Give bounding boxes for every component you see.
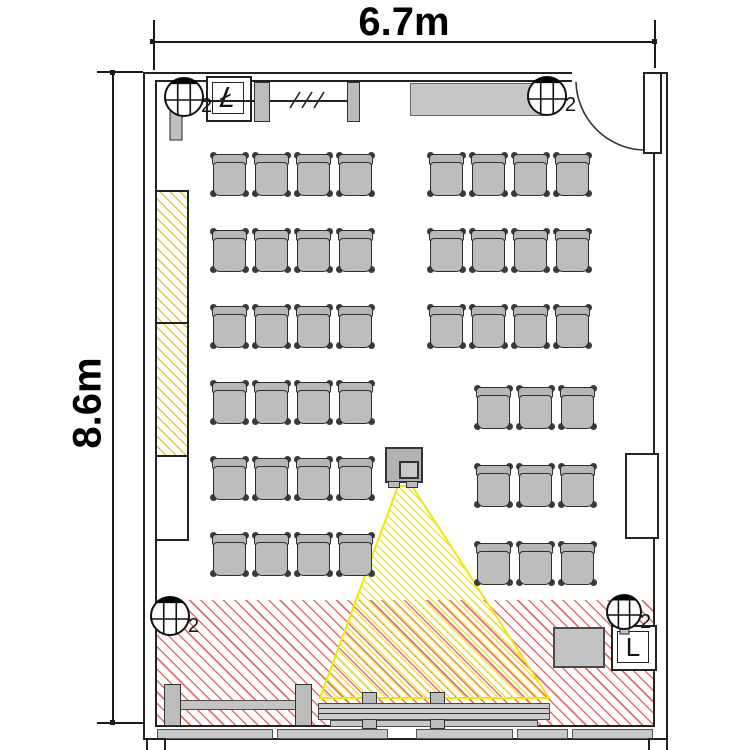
chair-seat — [297, 314, 330, 348]
chair-seat — [255, 238, 288, 272]
projector — [385, 447, 423, 483]
chair — [295, 457, 333, 501]
panel-box-inner: L — [617, 631, 649, 663]
chair-seat — [472, 238, 505, 272]
wall-board — [410, 83, 545, 116]
chair-seat — [556, 238, 589, 272]
chair — [428, 305, 466, 349]
chair-seat — [339, 162, 372, 196]
fixture-top-right-label: 2 — [565, 94, 576, 117]
long-table — [318, 703, 550, 720]
chair-seat — [561, 395, 594, 429]
chair — [211, 381, 249, 425]
panel-box-inner: Ł — [212, 82, 244, 114]
dim-tick — [150, 39, 155, 44]
chair-seat — [430, 314, 463, 348]
chair-seat — [255, 162, 288, 196]
chair — [517, 542, 555, 586]
chair — [295, 533, 333, 577]
bench-bar — [164, 700, 312, 710]
side-table — [553, 627, 605, 668]
chair-seat — [297, 238, 330, 272]
bench-post — [295, 684, 312, 726]
dim-tick — [652, 39, 657, 44]
chair-seat — [519, 395, 552, 429]
chair — [475, 386, 513, 430]
chair — [512, 153, 550, 197]
radiator-strip-divider — [157, 322, 187, 324]
chair-seat — [213, 542, 246, 576]
chair — [475, 464, 513, 508]
chair — [517, 464, 555, 508]
chair — [337, 153, 375, 197]
chair-seat — [561, 473, 594, 507]
rail-post — [254, 82, 270, 122]
door-leaf — [643, 72, 662, 154]
chair — [295, 153, 333, 197]
right-wall-pilaster — [625, 453, 659, 539]
door-opening — [572, 70, 654, 84]
band-segment — [517, 729, 568, 739]
rail-post — [347, 82, 360, 122]
chair — [559, 464, 597, 508]
chair-seat — [255, 314, 288, 348]
radiator-strip — [155, 190, 189, 459]
chair — [337, 533, 375, 577]
band-segment — [157, 729, 273, 739]
chair — [337, 457, 375, 501]
chair — [211, 153, 249, 197]
chair-seat — [477, 473, 510, 507]
chair — [337, 305, 375, 349]
fixture-top-left-label: 2 — [201, 95, 212, 118]
band-segment — [277, 729, 388, 739]
chair — [211, 305, 249, 349]
projector-foot — [406, 481, 418, 488]
chair — [337, 381, 375, 425]
chair-seat — [297, 542, 330, 576]
chair-seat — [514, 238, 547, 272]
chair — [295, 381, 333, 425]
corner-foot-left — [146, 738, 166, 750]
chair-seat — [519, 551, 552, 585]
chair — [512, 229, 550, 273]
chair — [517, 386, 555, 430]
chair — [475, 542, 513, 586]
chair — [253, 457, 291, 501]
width-dimension-label: 6.7m — [324, 0, 484, 45]
chair — [512, 305, 550, 349]
height-dim-ext-top — [97, 71, 143, 73]
chair-seat — [255, 390, 288, 424]
band-segment — [572, 729, 653, 739]
corner-foot-right — [648, 738, 668, 750]
chair-seat — [213, 466, 246, 500]
chair — [559, 542, 597, 586]
fixture-bottom-left-label: 2 — [188, 615, 199, 638]
dim-tick — [110, 70, 115, 75]
chair-seat — [213, 314, 246, 348]
chair — [554, 229, 592, 273]
chair-seat — [339, 390, 372, 424]
width-dim-ext-left — [153, 20, 155, 70]
chair — [253, 533, 291, 577]
height-dim-ext-bottom — [97, 722, 143, 724]
chair-seat — [339, 466, 372, 500]
chair — [295, 229, 333, 273]
table-tab — [430, 719, 445, 729]
chair-seat — [556, 314, 589, 348]
chair — [470, 305, 508, 349]
chair-seat — [339, 314, 372, 348]
chair-seat — [297, 466, 330, 500]
long-table-line — [319, 713, 549, 714]
chair-seat — [514, 314, 547, 348]
chair-seat — [297, 390, 330, 424]
chair — [554, 305, 592, 349]
chair — [428, 229, 466, 273]
height-dimension-label: 8.6m — [66, 357, 111, 448]
chair-seat — [514, 162, 547, 196]
chair — [253, 229, 291, 273]
chair-seat — [430, 162, 463, 196]
panel-letter-top-left: Ł — [217, 82, 239, 115]
dim-tick — [110, 720, 115, 725]
panel-box-top-left: Ł — [206, 76, 252, 122]
chair-seat — [339, 238, 372, 272]
chair-seat — [472, 162, 505, 196]
floor-plan-canvas: 6.7m 8.6m — [0, 0, 750, 750]
chair — [211, 229, 249, 273]
chair-seat — [213, 238, 246, 272]
projector-foot — [388, 481, 400, 488]
chair-seat — [255, 542, 288, 576]
height-dimension-line — [112, 72, 114, 723]
chair — [253, 305, 291, 349]
width-dim-ext-right — [654, 20, 656, 68]
long-table-line — [319, 708, 549, 709]
chair-seat — [561, 551, 594, 585]
panel-letter-bottom-right: L — [626, 632, 640, 663]
chair — [428, 153, 466, 197]
chair-seat — [255, 466, 288, 500]
chair — [554, 153, 592, 197]
chair-seat — [472, 314, 505, 348]
chair — [470, 229, 508, 273]
width-dimension-line — [153, 41, 655, 43]
chair-seat — [297, 162, 330, 196]
chair — [253, 381, 291, 425]
chair-seat — [556, 162, 589, 196]
chair-seat — [339, 542, 372, 576]
band-segment — [416, 729, 513, 739]
left-wall-niche — [155, 455, 189, 541]
bench-post — [164, 684, 181, 726]
chair-seat — [519, 473, 552, 507]
chair — [211, 457, 249, 501]
chair-seat — [213, 162, 246, 196]
chair — [559, 386, 597, 430]
projector-lens-box — [399, 461, 419, 479]
chair — [337, 229, 375, 273]
chair-seat — [213, 390, 246, 424]
chair — [470, 153, 508, 197]
chair-seat — [430, 238, 463, 272]
chair — [211, 533, 249, 577]
fixture-bottom-right-label: 2 — [640, 611, 651, 634]
chair-seat — [477, 395, 510, 429]
chair — [253, 153, 291, 197]
chair — [295, 305, 333, 349]
chair-seat — [477, 551, 510, 585]
table-tab — [362, 719, 377, 729]
